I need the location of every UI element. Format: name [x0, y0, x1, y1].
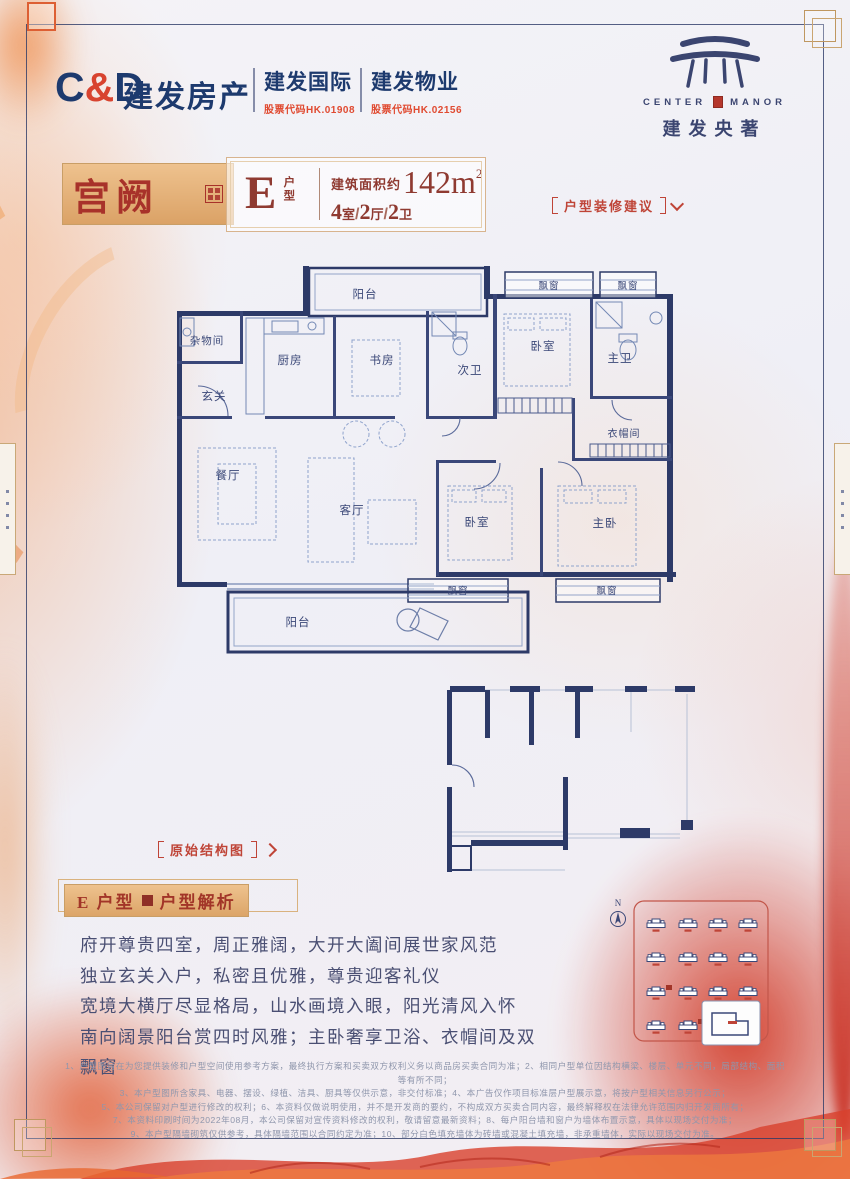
- poster-page: C&D 建发房产 建发国际 股票代码HK.01908 建发物业 股票代码HK.0…: [0, 0, 850, 1179]
- disclaimer-line: 5、本公司保留对户型进行修改的权利；6、本资料仅做说明使用，并不是开发商的要约，…: [65, 1101, 785, 1115]
- brand-property-code: 股票代码HK.02156: [371, 101, 462, 116]
- cd-logo-c: C: [55, 64, 85, 110]
- disclaimer-line: 1、户型图旨在为您提供装修和户型空间使用参考方案，最终执行方案和买卖双方权利义务…: [65, 1060, 785, 1087]
- bracket-right: [251, 841, 257, 858]
- project-en-left: CENTER: [643, 97, 706, 108]
- unit-name-box: 宫阙: [62, 163, 234, 225]
- project-logo: CENTER MANOR 建发央著: [622, 32, 807, 141]
- analysis-line: 宽境大横厅尽显格局，山水画境入眼，阳光清风入怀: [80, 991, 540, 1022]
- bracket-left: [552, 197, 558, 214]
- chevron-down-icon: [670, 196, 684, 210]
- project-seal-icon: [713, 96, 723, 108]
- analysis-seal-icon: [142, 895, 153, 906]
- project-en-right: MANOR: [730, 97, 786, 108]
- analysis-line: 府开尊贵四室，周正雅阔，大开大阖间展世家风范: [80, 930, 540, 961]
- brand-intl-block: 建发国际 股票代码HK.01908: [264, 66, 355, 116]
- header-divider-1: [253, 68, 255, 112]
- room-label-dining: 餐厅: [216, 468, 241, 482]
- header-divider-2: [360, 68, 362, 112]
- brand-property-name: 建发物业: [371, 66, 462, 96]
- bracket-right: [660, 197, 666, 214]
- room-label-study: 书房: [370, 354, 395, 367]
- analysis-line: 独立玄关入户，私密且优雅，尊贵迎客礼仪: [80, 961, 540, 992]
- frame-ornament-bottom-left: [14, 1119, 46, 1151]
- decor-suggestion-label: 户型装修建议: [564, 196, 654, 215]
- analysis-tag-unit: E 户型: [77, 888, 135, 913]
- compass-icon: [611, 912, 626, 927]
- room-label-bath2: 次卫: [458, 363, 483, 377]
- floorplan-drawing: 阳台 杂物间 厨房 书房 次卫 玄关 飘窗 飘窗 卧室 主卫 衣帽间 餐厅 客厅…: [160, 248, 690, 658]
- disclaimer-line: 3、本户型图所含家具、电器、摆设、绿植、洁具、厨具等仅供示意，非交付标准；4、本…: [65, 1087, 785, 1101]
- room-label-baywindow-d: 飘窗: [596, 585, 617, 597]
- room-label-storage: 杂物间: [190, 334, 225, 347]
- unit-name: 宫阙: [73, 167, 159, 221]
- room-label-master-bath: 主卫: [608, 352, 633, 365]
- structure-link[interactable]: 原始结构图: [158, 840, 275, 859]
- room-label-kitchen: 厨房: [278, 354, 303, 367]
- room-label-baywindow-a: 飘窗: [538, 280, 559, 292]
- cd-logo-ampersand: &: [85, 64, 115, 110]
- area-sup: 2: [476, 166, 483, 182]
- structure-link-label: 原始结构图: [170, 840, 245, 859]
- room-label-baywindow-c: 飘窗: [447, 585, 468, 597]
- phoenix-art-left-lower: [0, 640, 50, 1060]
- room-label-balcony-top: 阳台: [353, 287, 378, 301]
- room-label-master-bedroom: 主卧: [593, 517, 618, 530]
- chevron-right-icon: [263, 842, 277, 856]
- room-label-balcony-bottom: 阳台: [286, 615, 311, 629]
- room-label-cloakroom: 衣帽间: [608, 427, 641, 440]
- brand-property-block: 建发物业 股票代码HK.02156: [371, 66, 462, 116]
- left-edge-tab: [0, 443, 16, 575]
- north-label: N: [615, 898, 622, 908]
- rooms-spec: 4室/2厅/2卫: [331, 199, 482, 225]
- analysis-tag: E 户型 户型解析: [64, 884, 249, 917]
- analysis-tag-title: 户型解析: [160, 888, 236, 913]
- unit-spec-box: E 户型 建筑面积约 142m 2 4室/2厅/2卫: [226, 157, 486, 232]
- room-label-bedroom-b: 卧室: [465, 515, 490, 529]
- phoenix-art-right-strip: [824, 540, 850, 1140]
- room-label-living: 客厅: [340, 503, 365, 517]
- disclaimer-line: 7、本资料印刷时间为2022年08月，本公司保留对宣传资料修改的权利，敬请留意最…: [65, 1114, 785, 1128]
- unit-name-seal-icon: [205, 185, 223, 203]
- room-label-entry: 玄关: [202, 389, 227, 403]
- room-label-baywindow-b: 飘窗: [617, 280, 638, 292]
- project-cn-name: 建发央著: [663, 115, 767, 141]
- siteplan-map: N: [600, 893, 775, 1058]
- gate-icon: [667, 32, 763, 90]
- decor-suggestion-link[interactable]: 户型装修建议: [552, 196, 682, 215]
- frame-ornament-top-left: [27, 2, 56, 31]
- structure-drawing: [425, 682, 725, 877]
- room-label-bedroom-a: 卧室: [531, 339, 556, 353]
- disclaimer: 1、户型图旨在为您提供装修和户型空间使用参考方案，最终执行方案和买卖双方权利义务…: [65, 1060, 785, 1142]
- area-value: 142m: [403, 166, 476, 198]
- frame-ornament-top-right: [804, 10, 836, 42]
- brand-name: 建发房产: [123, 72, 251, 116]
- phoenix-swirl-left-2: [0, 285, 164, 601]
- unit-letter: E: [245, 168, 276, 218]
- area-label: 建筑面积约: [331, 174, 401, 198]
- right-edge-tab: [834, 443, 850, 575]
- disclaimer-line: 9、本户型隔墙砌筑仅供参考，具体隔墙范围以合同约定为准；10、部分白色填充墙体为…: [65, 1128, 785, 1142]
- bracket-left: [158, 841, 164, 858]
- brand-intl-name: 建发国际: [264, 66, 355, 96]
- unit-type-label: 户型: [280, 176, 296, 203]
- brand-intl-code: 股票代码HK.01908: [264, 101, 355, 116]
- frame-ornament-bottom-right: [804, 1119, 836, 1151]
- siteplan-sales-office: [702, 1001, 760, 1045]
